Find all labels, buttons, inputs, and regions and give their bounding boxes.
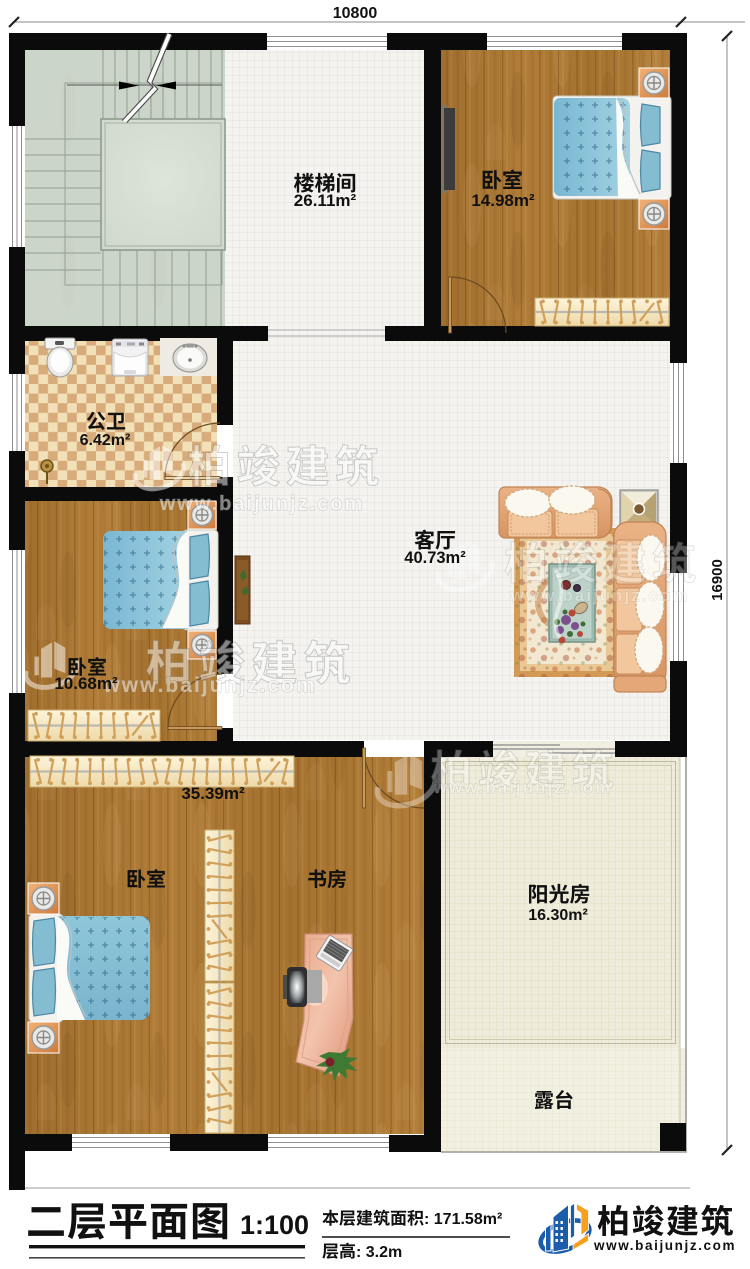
- svg-text:www.baijunjz.com: www.baijunjz.com: [510, 586, 690, 605]
- svg-text:: 3.2m: : 3.2m: [356, 1244, 402, 1261]
- svg-text:40.73m²: 40.73m²: [404, 549, 466, 567]
- svg-text:10.68m²: 10.68m²: [54, 674, 118, 693]
- svg-text:1:100: 1:100: [240, 1210, 309, 1240]
- svg-text:: 171.58m²: : 171.58m²: [424, 1211, 502, 1228]
- svg-text:16.30m²: 16.30m²: [528, 907, 588, 924]
- svg-text:6.42m²: 6.42m²: [80, 432, 131, 449]
- svg-text:www.baijunjz.com: www.baijunjz.com: [593, 1238, 736, 1253]
- svg-text:16900: 16900: [709, 559, 726, 601]
- svg-text:10800: 10800: [333, 5, 378, 22]
- svg-text:26.11m²: 26.11m²: [294, 191, 357, 210]
- svg-text:www.baijunjz.com: www.baijunjz.com: [102, 674, 316, 697]
- svg-text:35.39m²: 35.39m²: [181, 784, 245, 803]
- svg-text:www.baijunjz.com: www.baijunjz.com: [159, 493, 365, 515]
- svg-text:14.98m²: 14.98m²: [471, 191, 535, 210]
- svg-text:www.baijunjz.com: www.baijunjz.com: [433, 778, 613, 797]
